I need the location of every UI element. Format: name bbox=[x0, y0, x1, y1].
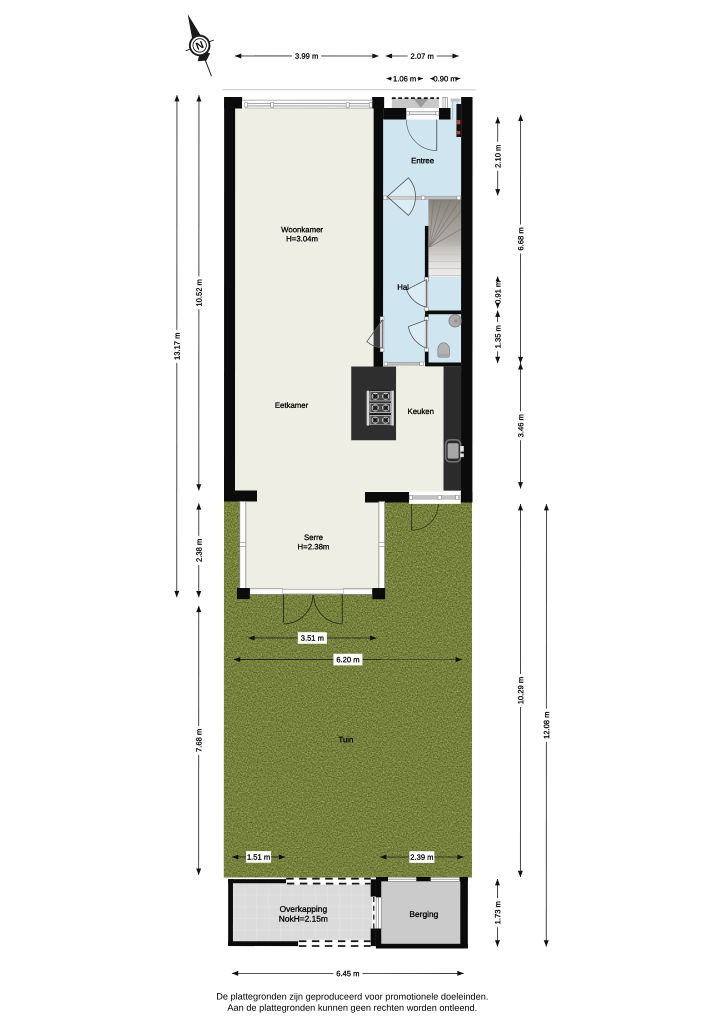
svg-text:Tuin: Tuin bbox=[338, 735, 353, 744]
svg-text:1.35 m: 1.35 m bbox=[493, 325, 502, 348]
svg-text:Berging: Berging bbox=[409, 909, 438, 919]
svg-text:6.20 m: 6.20 m bbox=[336, 655, 359, 664]
svg-text:Entree: Entree bbox=[411, 156, 434, 165]
svg-text:3.46 m: 3.46 m bbox=[516, 414, 525, 437]
svg-text:12.08 m: 12.08 m bbox=[542, 712, 551, 739]
svg-text:13.17 m: 13.17 m bbox=[173, 333, 182, 360]
svg-text:1.51 m: 1.51 m bbox=[247, 853, 270, 862]
svg-text:Aan de plattegronden kunnen ge: Aan de plattegronden kunnen geen rechten… bbox=[227, 1003, 477, 1013]
svg-text:2.10 m: 2.10 m bbox=[494, 145, 503, 168]
svg-text:Eetkamer: Eetkamer bbox=[275, 401, 309, 410]
svg-text:10.52 m: 10.52 m bbox=[195, 279, 204, 306]
svg-text:3.99 m: 3.99 m bbox=[295, 52, 318, 61]
svg-text:0.91 m: 0.91 m bbox=[493, 281, 502, 304]
svg-text:NokH=2.15m: NokH=2.15m bbox=[279, 914, 328, 924]
svg-text:H=3.04m: H=3.04m bbox=[286, 234, 318, 243]
svg-text:7.68 m: 7.68 m bbox=[195, 729, 204, 752]
svg-text:Keuken: Keuken bbox=[408, 407, 434, 416]
svg-text:6.68 m: 6.68 m bbox=[516, 227, 525, 250]
svg-text:De plattegronden zijn geproduc: De plattegronden zijn geproduceerd voor … bbox=[216, 992, 488, 1002]
svg-text:Overkapping: Overkapping bbox=[280, 904, 328, 914]
svg-text:0.90 m: 0.90 m bbox=[433, 74, 456, 83]
svg-text:2.07 m: 2.07 m bbox=[411, 52, 434, 61]
svg-text:Serre: Serre bbox=[304, 533, 323, 542]
svg-text:2.38 m: 2.38 m bbox=[195, 539, 204, 562]
svg-text:Hal: Hal bbox=[397, 283, 409, 292]
svg-text:H=2.38m: H=2.38m bbox=[298, 542, 330, 551]
svg-text:1.73 m: 1.73 m bbox=[493, 901, 502, 924]
svg-text:3.51 m: 3.51 m bbox=[301, 634, 324, 643]
svg-text:10.29 m: 10.29 m bbox=[516, 677, 525, 704]
svg-text:1.06 m: 1.06 m bbox=[393, 74, 416, 83]
svg-text:Woonkamer: Woonkamer bbox=[281, 225, 323, 234]
svg-text:6.45 m: 6.45 m bbox=[336, 969, 359, 978]
svg-text:2.39 m: 2.39 m bbox=[410, 853, 433, 862]
